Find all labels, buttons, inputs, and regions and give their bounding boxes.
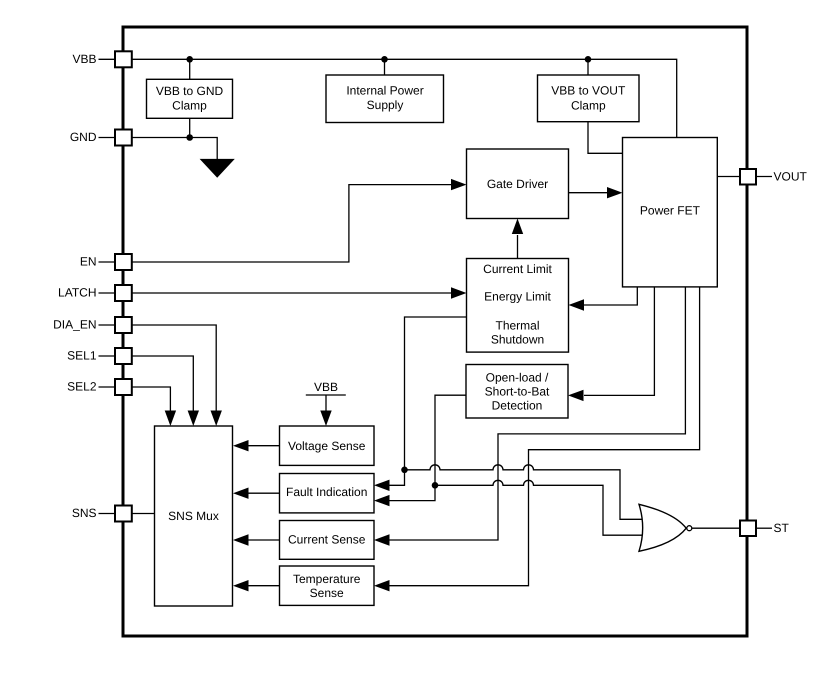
- svg-text:Short-to-Bat: Short-to-Bat: [485, 384, 550, 398]
- svg-text:ST: ST: [774, 521, 790, 535]
- svg-text:Power FET: Power FET: [640, 204, 701, 218]
- svg-text:SNS Mux: SNS Mux: [168, 509, 219, 523]
- svg-text:Thermal: Thermal: [495, 318, 539, 332]
- svg-text:Gate Driver: Gate Driver: [487, 177, 548, 191]
- svg-text:Energy Limit: Energy Limit: [484, 290, 551, 304]
- svg-text:SEL2: SEL2: [67, 380, 97, 394]
- svg-text:EN: EN: [80, 255, 97, 269]
- svg-text:Supply: Supply: [367, 98, 404, 112]
- svg-text:VOUT: VOUT: [774, 170, 808, 184]
- svg-text:VBB: VBB: [72, 52, 96, 66]
- svg-text:SEL1: SEL1: [67, 349, 97, 363]
- svg-text:Sense: Sense: [310, 586, 344, 600]
- svg-text:Temperature: Temperature: [293, 572, 361, 586]
- svg-text:Fault Indication: Fault Indication: [286, 485, 367, 499]
- svg-text:VBB to GND: VBB to GND: [156, 84, 224, 98]
- svg-text:Detection: Detection: [492, 398, 543, 412]
- svg-text:LATCH: LATCH: [58, 286, 96, 300]
- svg-text:Clamp: Clamp: [571, 98, 606, 112]
- svg-text:DIA_EN: DIA_EN: [53, 318, 96, 332]
- svg-text:Voltage Sense: Voltage Sense: [288, 439, 366, 453]
- svg-text:Shutdown: Shutdown: [491, 332, 544, 346]
- svg-text:GND: GND: [70, 130, 97, 144]
- svg-text:SNS: SNS: [72, 506, 97, 520]
- svg-text:VBB to VOUT: VBB to VOUT: [551, 84, 626, 98]
- svg-text:Open-load /: Open-load /: [486, 370, 549, 384]
- svg-text:VBB: VBB: [314, 380, 338, 394]
- svg-text:Internal Power: Internal Power: [346, 83, 423, 97]
- svg-text:Current Sense: Current Sense: [288, 533, 366, 547]
- svg-text:Clamp: Clamp: [172, 99, 207, 113]
- svg-text:Current Limit: Current Limit: [483, 262, 552, 276]
